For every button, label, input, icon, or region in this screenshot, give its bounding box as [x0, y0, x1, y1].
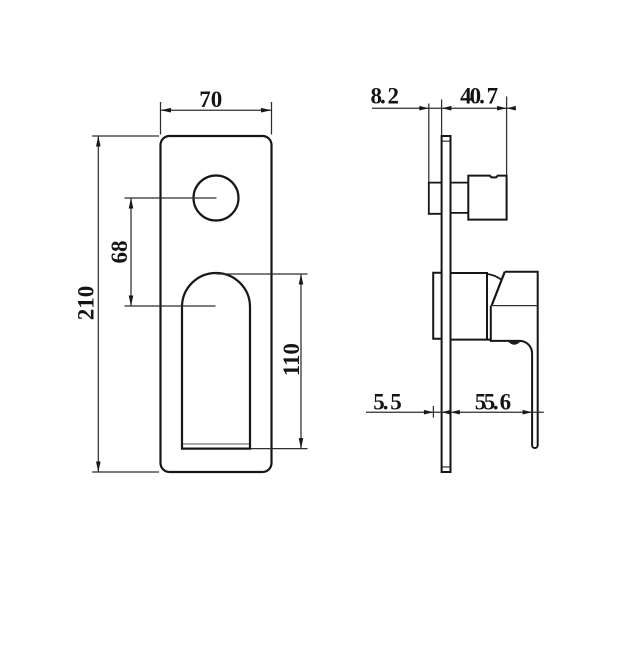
svg-text:55. 6: 55. 6 — [475, 390, 511, 415]
svg-text:40. 7: 40. 7 — [460, 83, 498, 108]
svg-text:210: 210 — [73, 286, 98, 321]
svg-text:110: 110 — [279, 343, 304, 376]
svg-text:8. 2: 8. 2 — [371, 83, 399, 108]
svg-text:5. 5: 5. 5 — [373, 390, 401, 415]
svg-text:68: 68 — [107, 241, 132, 264]
svg-text:70: 70 — [199, 87, 222, 112]
